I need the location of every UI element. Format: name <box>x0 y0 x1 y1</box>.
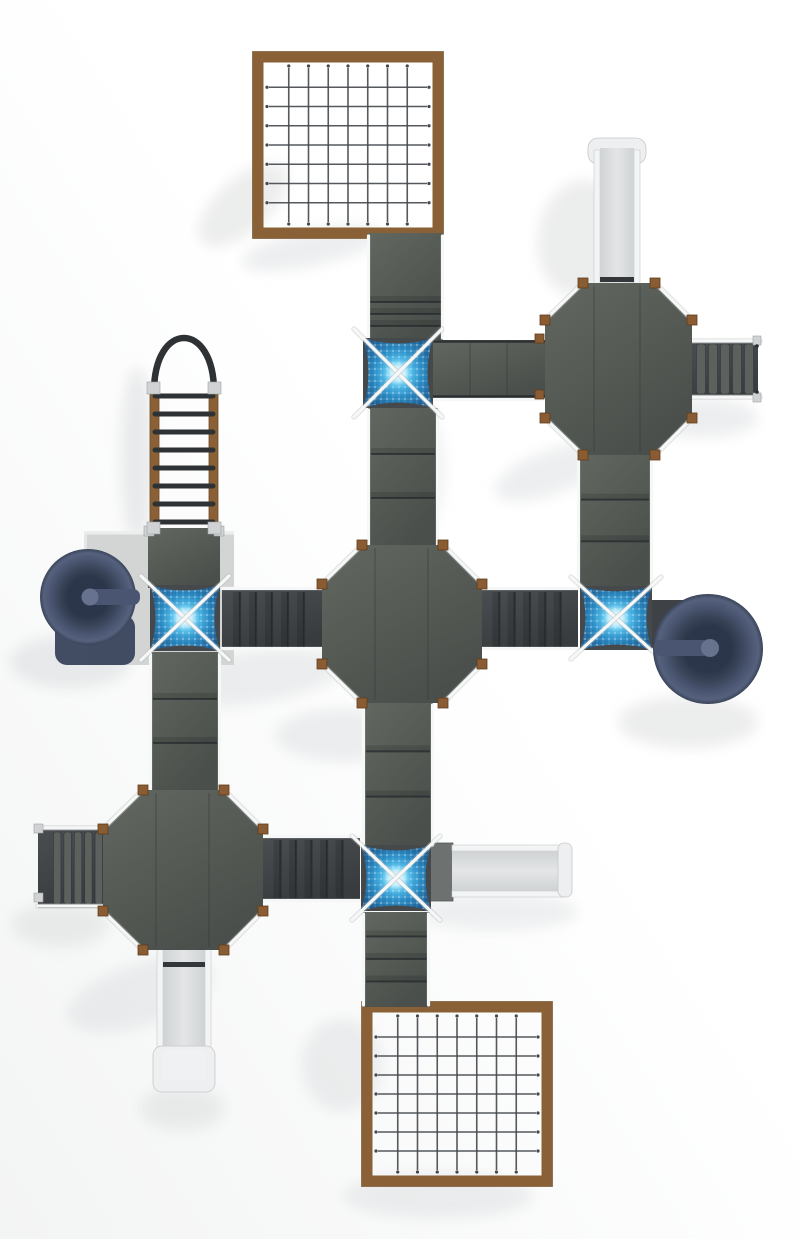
grid-anchor <box>346 222 349 225</box>
octagon-tower-top-right <box>540 278 697 460</box>
stair-tread <box>54 832 61 904</box>
bolt <box>755 390 759 394</box>
bridge-deck <box>433 340 545 398</box>
ramp-bottom-x-to-net <box>363 912 430 1007</box>
stair-tread <box>85 832 92 904</box>
straight-slide-right <box>429 843 572 901</box>
grid-anchor <box>374 1149 377 1152</box>
step-shade <box>289 840 296 898</box>
x-net-junction-top <box>354 329 442 417</box>
corner-post <box>357 698 367 708</box>
octagon-tower-bottom-left <box>98 785 268 955</box>
corner-post <box>578 450 588 460</box>
x-net-junction-right <box>571 577 661 659</box>
platform-ladder-landing <box>144 526 224 588</box>
ramp-deck <box>368 408 438 545</box>
grid-anchor <box>265 86 268 89</box>
slide-runout-bed <box>163 1050 205 1080</box>
step-shade <box>523 592 530 648</box>
ramp-center-to-bottom-x <box>363 703 433 845</box>
bracket <box>147 522 160 534</box>
shadow <box>618 696 758 748</box>
stair-tread <box>64 832 71 904</box>
corner-post <box>535 390 544 399</box>
grid-anchor <box>406 222 409 225</box>
grid-anchor <box>374 1111 377 1114</box>
stair-tread <box>709 344 718 394</box>
panel-shade <box>370 308 441 314</box>
straight-slide-top-right <box>588 138 646 290</box>
grid-anchor <box>327 64 330 67</box>
grid-anchor <box>455 1014 458 1017</box>
stair-tread <box>721 344 730 394</box>
tube-hub <box>701 639 719 657</box>
straight-slide-bottom-left <box>153 948 215 1092</box>
corner-post <box>438 540 448 550</box>
x-net-junction-left <box>141 576 229 660</box>
ramp-tr-octagon-to-right-x <box>578 455 652 586</box>
panel-shade <box>370 296 441 302</box>
grid-anchor <box>307 64 310 67</box>
corner-post <box>357 540 367 550</box>
grid-anchor <box>396 1170 399 1173</box>
tube-hub <box>82 589 99 606</box>
corner-post <box>317 579 327 589</box>
octagon-deck <box>322 545 482 703</box>
tube-slide-right <box>653 594 763 704</box>
corner-post <box>258 824 268 834</box>
step-shade <box>305 840 312 898</box>
x-net-junction-bottom <box>352 836 440 920</box>
grid-anchor <box>436 1014 439 1017</box>
slide-bed <box>600 148 634 288</box>
corner-post <box>650 450 660 460</box>
grid-anchor <box>495 1014 498 1017</box>
corner-post <box>438 698 448 708</box>
grid-anchor <box>327 222 330 225</box>
slide-end-cap <box>558 843 572 897</box>
grid-anchor <box>436 1170 439 1173</box>
grid-anchor <box>536 1111 539 1114</box>
step-shade <box>274 840 281 898</box>
bracket <box>208 522 221 534</box>
grid-anchor <box>536 1130 539 1133</box>
grid-anchor <box>374 1035 377 1038</box>
stair-tread <box>733 344 742 394</box>
grid-anchor <box>265 143 268 146</box>
grid-anchor <box>427 163 430 166</box>
stair-treads <box>54 832 103 904</box>
grid-anchor <box>536 1073 539 1076</box>
slide-entry-bar <box>163 962 205 967</box>
corner-post <box>477 659 487 669</box>
corner-post <box>258 906 268 916</box>
corner-post <box>477 579 487 589</box>
ramp-deck <box>578 455 652 586</box>
rail-post <box>753 393 761 402</box>
slide-bed <box>452 851 564 891</box>
corner-post <box>219 945 229 955</box>
grid-anchor <box>265 105 268 108</box>
platform-deck <box>148 528 220 588</box>
panel-shade <box>581 535 649 541</box>
step-shade <box>508 592 515 648</box>
stair-treads <box>697 344 754 394</box>
grid-anchor <box>287 222 290 225</box>
corner-post <box>578 278 588 288</box>
step-bridge-right-x-to-center <box>482 589 578 651</box>
grid-anchor <box>416 1170 419 1173</box>
shadow <box>140 1086 224 1130</box>
grid-anchor <box>427 105 430 108</box>
grid-anchor <box>287 64 290 67</box>
panel-shade <box>371 492 435 498</box>
grid-anchor <box>475 1014 478 1017</box>
step-shade <box>233 592 240 648</box>
panel-shade <box>366 745 430 751</box>
grid-anchor <box>265 182 268 185</box>
stair-tread <box>74 832 81 904</box>
panel-shade <box>366 931 427 937</box>
grid-anchor <box>536 1035 539 1038</box>
slide-entry-block <box>429 843 453 901</box>
step-panels <box>370 296 441 326</box>
octagon-deck <box>545 283 692 455</box>
slide-rail <box>634 150 640 290</box>
panel-shade <box>153 737 217 743</box>
grid-anchor <box>427 124 430 127</box>
panel-shade <box>366 791 430 797</box>
corner-post <box>317 659 327 669</box>
step-shade <box>320 840 327 898</box>
grid-anchor <box>374 1092 377 1095</box>
panel-shade <box>371 448 435 454</box>
corner-post <box>138 785 148 795</box>
corner-post <box>540 413 550 423</box>
stairs-bottom-left <box>34 824 104 908</box>
rail-post <box>34 893 43 902</box>
panel-shade <box>366 953 427 959</box>
grid-anchor <box>265 163 268 166</box>
step-bridge-bl-octagon-to-bottom-x <box>263 837 360 901</box>
corner-post <box>98 824 108 834</box>
bracket <box>147 382 160 394</box>
panel-shade <box>581 494 649 500</box>
ramp-left-x-to-bl-octagon <box>150 652 220 790</box>
grid-anchor <box>427 86 430 89</box>
stairs-top-right <box>692 336 761 402</box>
bridge-net-to-top-x <box>368 233 443 340</box>
ramp-top-x-to-center <box>368 408 438 545</box>
grid-anchor <box>374 1073 377 1076</box>
grid-anchor <box>307 222 310 225</box>
grid-anchor <box>265 124 268 127</box>
grid-anchor <box>386 222 389 225</box>
stair-tread <box>697 344 706 394</box>
bolt <box>755 344 759 348</box>
corner-post <box>540 315 550 325</box>
grid-anchor <box>427 201 430 204</box>
grid-anchor <box>406 64 409 67</box>
grid-anchor <box>536 1054 539 1057</box>
stair-tread <box>745 344 754 394</box>
step-shade <box>281 592 288 648</box>
rail-post <box>34 824 43 833</box>
grid-anchor <box>374 1130 377 1133</box>
ramp-deck <box>150 652 220 790</box>
corner-post <box>98 906 108 916</box>
grid-anchor <box>386 64 389 67</box>
grid-anchor <box>427 143 430 146</box>
corner-post <box>138 945 148 955</box>
corner-post <box>535 334 544 343</box>
scene-canvas <box>0 0 800 1239</box>
grid-anchor <box>515 1014 518 1017</box>
step-shade <box>249 592 256 648</box>
ladder-rail <box>209 388 218 533</box>
corner-post <box>687 315 697 325</box>
grid-anchor <box>536 1149 539 1152</box>
shadow <box>12 903 108 947</box>
grid-anchor <box>374 1054 377 1057</box>
panel-shade <box>370 320 441 326</box>
corner-post <box>650 278 660 288</box>
slide-rail <box>594 150 600 290</box>
ramp-deck <box>363 703 433 845</box>
step-shade <box>297 592 304 648</box>
grid-anchor <box>515 1170 518 1173</box>
octagon-deck <box>103 790 263 950</box>
grid-anchor <box>455 1170 458 1173</box>
playground-render <box>0 0 800 1239</box>
grid-anchor <box>416 1014 419 1017</box>
ladder-rail <box>150 388 159 533</box>
octagon-tower-center <box>317 540 487 708</box>
grid-anchor <box>366 222 369 225</box>
slide-entry-bar <box>600 277 634 282</box>
grid-anchor <box>396 1014 399 1017</box>
step-shade <box>336 840 343 898</box>
step-shade <box>265 592 272 648</box>
rail-post <box>753 336 761 345</box>
grid-anchor <box>265 201 268 204</box>
step-shade <box>538 592 545 648</box>
grid-anchor <box>495 1170 498 1173</box>
grid-anchor <box>427 182 430 185</box>
step-shade <box>492 592 499 648</box>
corner-post <box>219 785 229 795</box>
slide-rail <box>452 845 564 851</box>
bracket <box>208 382 221 394</box>
step-shade <box>554 592 561 648</box>
grid-anchor <box>475 1170 478 1173</box>
corner-post <box>687 413 697 423</box>
step-bridge-left-x-to-center <box>222 589 322 651</box>
panel-shade <box>153 693 217 699</box>
grid-anchor <box>536 1092 539 1095</box>
stair-tread <box>95 832 102 904</box>
slide-rail <box>452 891 564 897</box>
grid-anchor <box>366 64 369 67</box>
bridge-top-x-to-tr-octagon <box>433 334 545 400</box>
panel-shade <box>366 976 427 982</box>
grid-anchor <box>346 64 349 67</box>
